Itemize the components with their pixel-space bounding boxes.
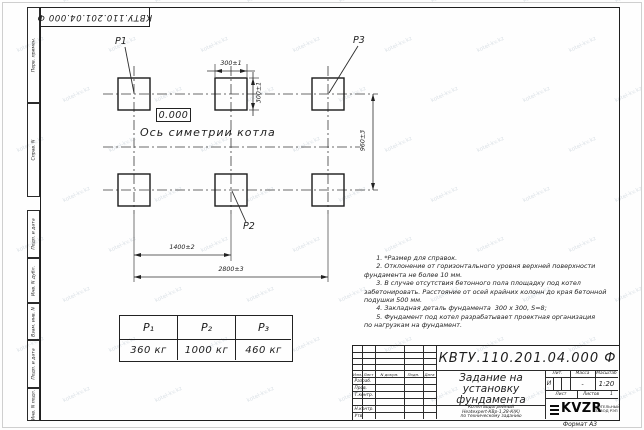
tb-col-data: Дата xyxy=(423,372,436,377)
loads-table-value-p2: 1000 кг xyxy=(177,339,235,360)
dim-2800: 2800±3 xyxy=(206,266,256,273)
tb-line xyxy=(561,377,562,390)
tb-massa-label: Масса xyxy=(570,370,595,377)
note-line: подушки 500 мм. xyxy=(364,296,616,304)
tb-line xyxy=(353,398,436,399)
loads-table-header-p1: P₁ xyxy=(120,316,177,339)
tb-line xyxy=(353,391,436,392)
tb-listov-label: Листов xyxy=(577,390,605,398)
tb-col-izm: Изм. xyxy=(353,372,362,377)
center-lines xyxy=(103,66,378,214)
tb-line xyxy=(353,412,436,413)
note-line: 1. *Размер для справок. xyxy=(364,254,616,262)
sheet: { "stamp_top": "КВТУ.110.201.04.000 Ф", … xyxy=(0,0,644,430)
tb-line xyxy=(353,405,436,406)
tb-lit-value: И xyxy=(545,377,553,390)
loads-table-header-p3: P₃ xyxy=(235,316,291,339)
dim-960: 960±3 xyxy=(360,121,367,161)
tb-list-label: Лист xyxy=(545,390,577,398)
loads-table-value-p1: 360 кг xyxy=(120,339,177,360)
level-mark: 0.000 xyxy=(156,108,191,122)
loads-table-value-p3: 460 кг xyxy=(235,339,291,360)
point-label-p2: P2 xyxy=(243,221,255,232)
format-label: Формат А3 xyxy=(540,421,620,428)
loads-table-header-p2: P₂ xyxy=(177,316,235,339)
axis-of-symmetry-label: Ось симетрии котла xyxy=(140,126,276,139)
tb-row-utv: Утв. xyxy=(355,414,364,419)
note-line: 5. Фундамент под котел разрабатывает про… xyxy=(364,313,616,321)
tb-row-tkontr: Т.контр. xyxy=(355,393,374,398)
tb-line xyxy=(423,346,424,419)
dim-300-width: 300±1 xyxy=(211,60,251,67)
note-line: 3. В случае отсутствия бетонного пола пл… xyxy=(364,279,616,287)
point-label-p3: P3 xyxy=(353,35,365,46)
loads-table: P₁ P₂ P₃ 360 кг 1000 кг 460 кг xyxy=(119,315,293,362)
tb-listov-value: 1 xyxy=(605,390,618,398)
tb-line xyxy=(353,377,436,378)
tb-line xyxy=(353,364,436,365)
dim-300-height: 300±1 xyxy=(256,76,263,110)
tb-row-prov: Пров. xyxy=(355,386,368,391)
tb-line xyxy=(353,384,436,385)
note-line: 2. Отклонение от горизонтального уровня … xyxy=(364,262,616,270)
kvzr-logo-icon xyxy=(550,405,559,416)
note-line: забетонировать. Расстояние от осей крайн… xyxy=(364,288,616,296)
dim-1400: 1400±2 xyxy=(157,244,207,251)
tb-masshtab-label: Масштаб xyxy=(595,370,618,377)
tb-line xyxy=(404,346,405,419)
tb-product-subtitle: Котел водогрейный Heatexpert-КВр-1,28-К(… xyxy=(437,406,545,420)
tb-line xyxy=(553,377,554,390)
tb-col-list: Лист xyxy=(362,372,375,377)
tb-col-podp: Подп. xyxy=(404,372,423,377)
note-line: фундамента не более 10 мм. xyxy=(364,271,616,279)
note-line: по нагрузкам на фундамент. xyxy=(364,321,616,329)
tb-line xyxy=(353,352,436,353)
tb-document-title: Задание на установку фундамента xyxy=(437,372,545,406)
notes-block: 1. *Размер для справок. 2. Отклонение от… xyxy=(364,254,616,330)
kvzr-logo-caption: КОТЕЛЬНЫЙ ЗАВОД РЭП xyxy=(595,405,621,414)
tb-masshtab-value: 1:20 xyxy=(595,377,618,390)
title-block: КВТУ.110.201.04.000 Ф Изм. Лист N докум.… xyxy=(352,345,620,421)
tb-line xyxy=(353,358,436,359)
point-label-p1: P1 xyxy=(115,36,127,47)
tb-row-nkontr: Н.контр. xyxy=(355,407,374,412)
tb-line xyxy=(375,346,376,419)
note-line: 4. Закладная деталь фундамента 300 х 300… xyxy=(364,304,616,312)
tb-lit-label: Лит. xyxy=(545,370,570,377)
tb-massa-value: - xyxy=(570,377,595,390)
tb-row-razrab: Разраб. xyxy=(355,379,372,384)
tb-designation: КВТУ.110.201.04.000 Ф xyxy=(437,347,618,370)
tb-col-ndoc: N докум. xyxy=(375,372,404,377)
tb-line xyxy=(545,398,618,399)
